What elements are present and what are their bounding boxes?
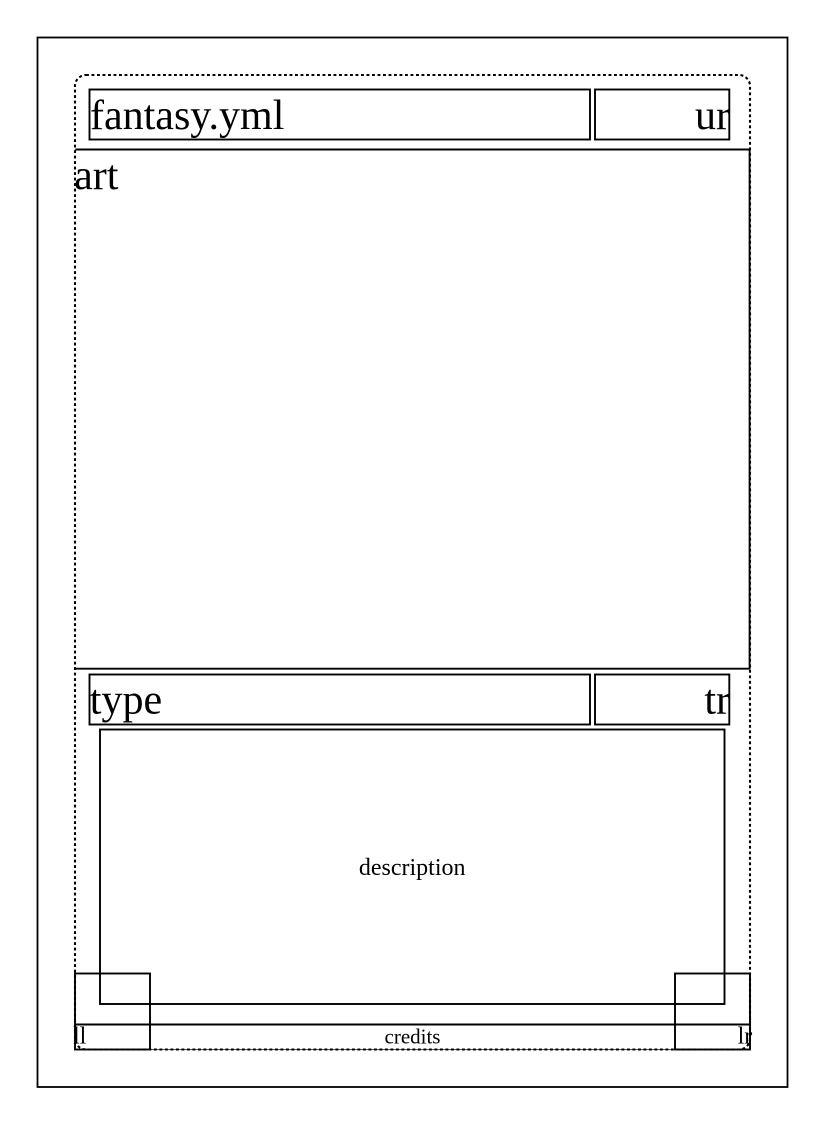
svg-text:tr: tr [704, 678, 730, 724]
svg-text:credits: credits [385, 1025, 441, 1049]
svg-text:description: description [359, 855, 466, 881]
svg-text:ur: ur [695, 93, 730, 139]
svg-text:fantasy.yml: fantasy.yml [90, 93, 284, 139]
svg-text:type: type [90, 678, 162, 724]
svg-text:art: art [74, 153, 119, 199]
